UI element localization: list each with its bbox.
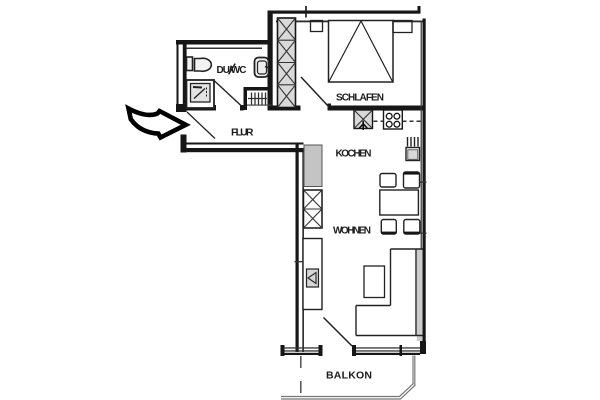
svg-text:WOHNEN: WOHNEN: [333, 225, 371, 236]
svg-text:BALKON: BALKON: [326, 370, 372, 382]
svg-text:SCHLAFEN: SCHLAFEN: [336, 93, 384, 104]
svg-text:FLUR: FLUR: [231, 127, 254, 139]
svg-text:KOCHEN: KOCHEN: [336, 148, 372, 159]
